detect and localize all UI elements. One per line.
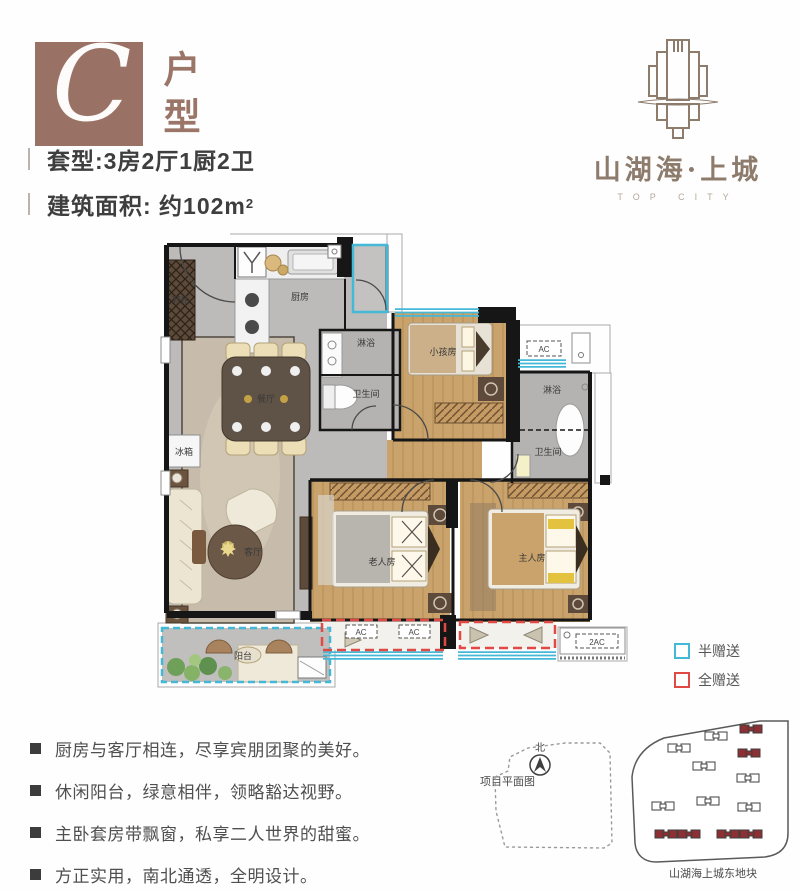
floorplan-poster: C 户型 套型:3房2厅1厨2卫 建筑面积: 约102m2 xyxy=(0,0,800,890)
legend-full-gift-label: 全赠送 xyxy=(698,670,740,690)
legend-half-gift-label: 半赠送 xyxy=(698,641,740,661)
east-plot-outline xyxy=(632,721,788,862)
unit-type-label: 户型 xyxy=(157,50,201,144)
feature-item: 主卧套房带飘窗，私享二人世界的甜蜜。 xyxy=(30,820,370,845)
room-label-master-room: 主人房 xyxy=(518,552,545,563)
feature-item: 厨房与客厅相连，尽享宾朋团聚的美好。 xyxy=(30,736,370,761)
tick-mark xyxy=(28,193,30,215)
full-gift-swatch-icon xyxy=(674,672,690,688)
feature-item: 休闲阳台，绿意相伴，领略豁达视野。 xyxy=(30,778,370,803)
spec-area: 建筑面积: 约102m2 xyxy=(28,187,254,221)
room-label-living: 客厅 xyxy=(244,546,262,557)
ac-label: AC xyxy=(538,345,549,354)
brand-emblem-icon xyxy=(632,36,724,144)
feature-text: 方正实用，南北通透，全明设计。 xyxy=(55,862,318,887)
window-master-bath xyxy=(518,360,566,367)
feature-list: 厨房与客厅相连，尽享宾朋团聚的美好。 休闲阳台，绿意相伴，领略豁达视野。 主卧套… xyxy=(30,736,370,890)
bullet-icon xyxy=(30,869,41,880)
feature-item: 方正实用，南北通透，全明设计。 xyxy=(30,862,370,887)
feature-text: 主卧套房带飘窗，私享二人世界的甜蜜。 xyxy=(55,820,370,845)
room-label-shoe-cabinet: 鞋柜 xyxy=(172,294,190,305)
bullet-icon xyxy=(30,743,41,754)
bullet-icon xyxy=(30,785,41,796)
room-label-kitchen: 厨房 xyxy=(291,291,309,302)
east-plot-label: 山湖海上城东地块 xyxy=(669,866,757,880)
ac-label: AC xyxy=(408,628,419,637)
room-label-elder-room: 老人房 xyxy=(368,556,395,567)
site-plan-title: 项目平面图 xyxy=(480,775,535,788)
west-plot-outline xyxy=(495,743,612,848)
room-label-shower-2: 淋浴 xyxy=(543,384,561,395)
room-label-shower-1: 淋浴 xyxy=(357,337,375,348)
floorplan-drawing: AC AC AC 2AC 鞋柜 厨房 淋浴 卫生间 小孩房 淋浴 卫生间 餐厅 … xyxy=(140,225,640,715)
spec-area-text: 建筑面积: 约102m xyxy=(47,187,246,221)
half-gift-swatch-icon xyxy=(674,643,690,659)
room-label-fridge: 冰箱 xyxy=(175,446,193,457)
brand-name: 山湖海·上城 xyxy=(594,148,762,187)
wardrobe xyxy=(435,403,503,423)
room-label-child-room: 小孩房 xyxy=(429,346,456,357)
ac-label: AC xyxy=(355,628,366,637)
brand-logo: 山湖海·上城 TOP CITY xyxy=(568,36,788,202)
room-label-bath-1: 卫生间 xyxy=(352,388,379,399)
feature-text: 厨房与客厅相连，尽享宾朋团聚的美好。 xyxy=(55,736,370,761)
room-label-balcony: 阳台 xyxy=(234,650,252,661)
room-label-bath-2: 卫生间 xyxy=(534,446,561,457)
site-plan: 北 项目平面图 山湖海上城东地块 xyxy=(460,715,795,890)
legend-full-gift: 全赠送 xyxy=(674,670,740,690)
window-elder-bay xyxy=(323,652,443,659)
spec-layout-text: 套型:3房2厅1厨2卫 xyxy=(47,142,255,176)
spec-layout: 套型:3房2厅1厨2卫 xyxy=(28,142,255,176)
window-master-bay xyxy=(458,652,556,659)
wardrobe xyxy=(508,483,590,498)
bullet-icon xyxy=(30,827,41,838)
room-label-dining: 餐厅 xyxy=(257,393,275,404)
north-label: 北 xyxy=(535,742,545,754)
tick-mark xyxy=(28,148,30,170)
gift-legend: 半赠送 全赠送 xyxy=(674,641,740,699)
ac-label: 2AC xyxy=(589,638,605,647)
feature-text: 休闲阳台，绿意相伴，领略豁达视野。 xyxy=(55,778,353,803)
brand-tagline: TOP CITY xyxy=(617,192,738,202)
legend-half-gift: 半赠送 xyxy=(674,641,740,661)
